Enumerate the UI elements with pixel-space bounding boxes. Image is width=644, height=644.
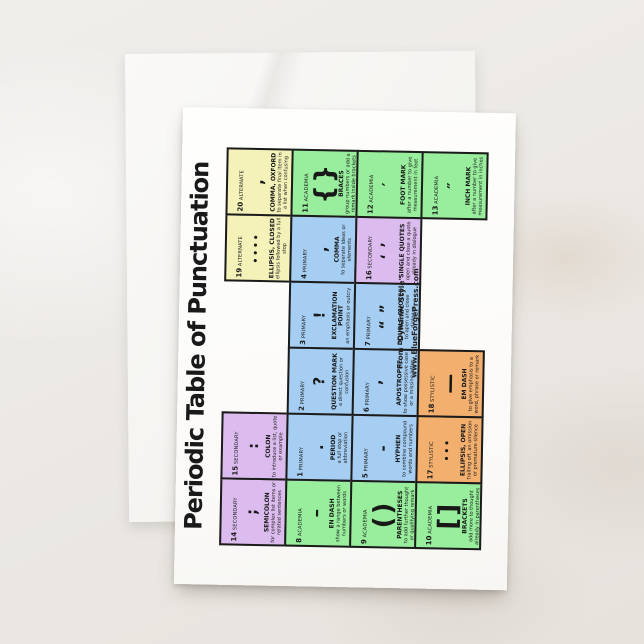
punctuation-description: for complex list items or related senten… [271,481,283,543]
cell-header: 6 PRIMARY [355,351,373,413]
punctuation-cell-9: 9 ACADEMIA()PARENTHESESto add further th… [349,480,417,549]
cell-category: PRIMARY [363,448,369,473]
cell-category: PRIMARY [301,315,307,340]
punctuation-description: after a number to give measurement in fe… [407,154,419,216]
punctuation-cell-11: 11 ACADEMIA{}BRACESgroup numbers or add … [290,149,358,218]
greeting-card-front: Periodic Table of Punctuation 14 SECONDA… [174,107,516,590]
cell-header: 8 ACADEMIA [288,482,306,544]
cell-header: 5 PRIMARY [354,417,372,479]
punctuation-symbol: ? [307,350,332,412]
punctuation-cell-17: 17 STYLISTIC•••ELLIPSIS, OPENtrailing of… [415,415,483,484]
punctuation-cell-19: 19 ALTERNATE••••ELLIPSIS, CLOSEDellipsis… [224,213,292,282]
card-print-design: Periodic Table of Punctuation 14 SECONDA… [174,107,516,589]
cell-number: 7 [363,341,371,346]
cell-header: 17 STYLISTIC [419,418,437,480]
punctuation-symbol: . [306,416,331,478]
punctuation-cell-13: 13 ACADEMIA″INCH MARKafter a number to g… [420,151,488,220]
cell-number: 12 [366,204,374,214]
punctuation-symbol: •••• [245,217,270,279]
punctuation-cell-5: 5 PRIMARY-HYPHENto combine compound word… [350,414,418,483]
cell-number: 8 [295,538,303,543]
punctuation-cell-14: 14 SECONDARY;SEMICOLONfor complex list i… [219,477,287,546]
cell-number: 3 [298,340,306,345]
cell-header: 12 ACADEMIA [359,153,377,215]
punctuation-description: trailing off, an omission or premature s… [467,419,479,481]
cell-number: 14 [230,532,238,542]
credit-source-line: From "Dynamic Style" [393,276,408,368]
punctuation-description: after a number to give measurement in in… [472,155,484,217]
punctuation-table: 14 SECONDARY;SEMICOLONfor complex list i… [219,145,491,550]
cell-number: 6 [362,407,370,412]
cell-number: 9 [360,539,368,544]
punctuation-cell-4: 4 PRIMARY,COMMAto separate ideas or elem… [289,215,357,284]
cell-category: PRIMARY [364,382,370,407]
cell-header: 4 PRIMARY [293,218,311,280]
cell-header: 2 PRIMARY [290,350,308,412]
punctuation-cell-8: 8 ACADEMIA–EN DASHshow a range between n… [284,479,352,548]
cell-category: PRIMARY [302,249,308,274]
punctuation-cell-15: 15 SECONDARY:COLONto introduce a list, q… [220,411,288,480]
punctuation-description: an emphasis or outcry [345,285,352,347]
cell-category: ACADEMIA [368,174,375,204]
studio-background: Periodic Table of Punctuation 14 SECONDA… [0,0,644,644]
punctuation-name: EXCLAMATION POINT [331,284,345,346]
cell-number: 18 [427,403,435,413]
cell-category: ACADEMIA [433,176,440,206]
punctuation-name: PERIOD [330,416,337,478]
punctuation-description: ellipsis followed by a full stop [276,217,288,279]
punctuation-symbol: ′ [376,153,401,215]
cell-category: ALTERNATE [238,170,245,202]
punctuation-symbol: – [304,482,329,544]
punctuation-symbol: , [309,218,334,280]
punctuation-symbol: , [246,151,271,213]
cell-category: PRIMARY [299,381,305,406]
cell-header: 13 ACADEMIA [424,154,442,216]
punctuation-description: a full stop or abbreviation [337,417,349,479]
cell-header: 1 PRIMARY [289,416,307,478]
cell-category: STYLISTIC [428,441,435,469]
cell-header: 7 PRIMARY [356,285,374,347]
punctuation-description: to give emphasis to a word, phrase or re… [468,353,480,415]
credit-url-line: www.BlueForgePress.com [406,268,422,378]
punctuation-cell-3: 3 PRIMARY!EXCLAMATION POINTan emphasis o… [287,281,355,350]
punctuation-description: to separate final item in a list when co… [277,151,289,213]
cell-number: 5 [361,473,369,478]
cell-number: 10 [425,535,433,545]
cell-category: SECONDARY [367,236,374,271]
cell-header: 15 SECONDARY [224,414,242,476]
cell-number: 16 [365,270,373,280]
punctuation-symbol: ; [239,481,264,543]
cell-number: 13 [431,206,439,216]
punctuation-symbol: ! [308,284,332,346]
punctuation-symbol: {} [311,152,339,215]
punctuation-cell-20: 20 ALTERNATE,COMMA, OXFORDto separate fi… [225,147,293,216]
cell-header: 3 PRIMARY [291,284,309,346]
cell-category: ALTERNATE [237,236,244,268]
cell-category: SECONDARY [233,431,240,466]
punctuation-symbol: - [371,417,396,479]
punctuation-description: show a range between numbers or words [336,483,348,545]
cell-header: 16 SECONDARY [358,219,376,281]
cell-number: 11 [301,203,309,213]
punctuation-symbol: — [437,352,462,414]
punctuation-cell-2: 2 PRIMARY?QUESTION MARKa direct question… [286,347,354,416]
punctuation-cell-1: 1 PRIMARY.PERIODa full stop or abbreviat… [285,413,353,482]
cell-number: 2 [297,406,305,411]
cell-category: ACADEMIA [362,509,369,539]
cell-number: 15 [231,466,239,476]
cell-category: PRIMARY [366,316,372,341]
cell-number: 17 [426,469,434,479]
cell-header: 19 ALTERNATE [228,216,246,278]
cell-category: SECONDARY [232,497,239,532]
punctuation-symbol: [] [434,484,462,547]
card-title: Periodic Table of Punctuation [178,108,215,584]
punctuation-description: a direct question or confusion [338,351,350,413]
punctuation-symbol: ″ [441,154,466,216]
cell-category: PRIMARY [298,447,304,472]
cell-category: ACADEMIA [297,508,304,538]
punctuation-symbol: () [369,483,397,546]
punctuation-description: to introduce a list, quote or example [272,415,284,477]
cell-number: 4 [300,274,308,279]
cell-number: 20 [236,202,244,212]
cell-header: 20 ALTERNATE [229,150,247,212]
cell-header: 14 SECONDARY [223,480,241,542]
punctuation-cell-12: 12 ACADEMIA′FOOT MARKafter a number to g… [355,150,423,219]
punctuation-cell-10: 10 ACADEMIA[]BRACKETSadd more to thought… [414,481,482,550]
punctuation-description: to combine compound words and numbers [402,418,414,480]
cell-number: 19 [235,268,243,278]
cell-category: ACADEMIA [427,506,434,536]
cell-number: 1 [296,472,304,477]
publisher-credit: From "Dynamic Style" www.BlueForgePress.… [373,255,443,390]
punctuation-description: add more to thought already in parenthes… [469,485,481,547]
punctuation-description: to separate ideas or elements [341,219,353,281]
punctuation-symbol: ••• [436,418,461,480]
punctuation-symbol: : [241,415,266,477]
